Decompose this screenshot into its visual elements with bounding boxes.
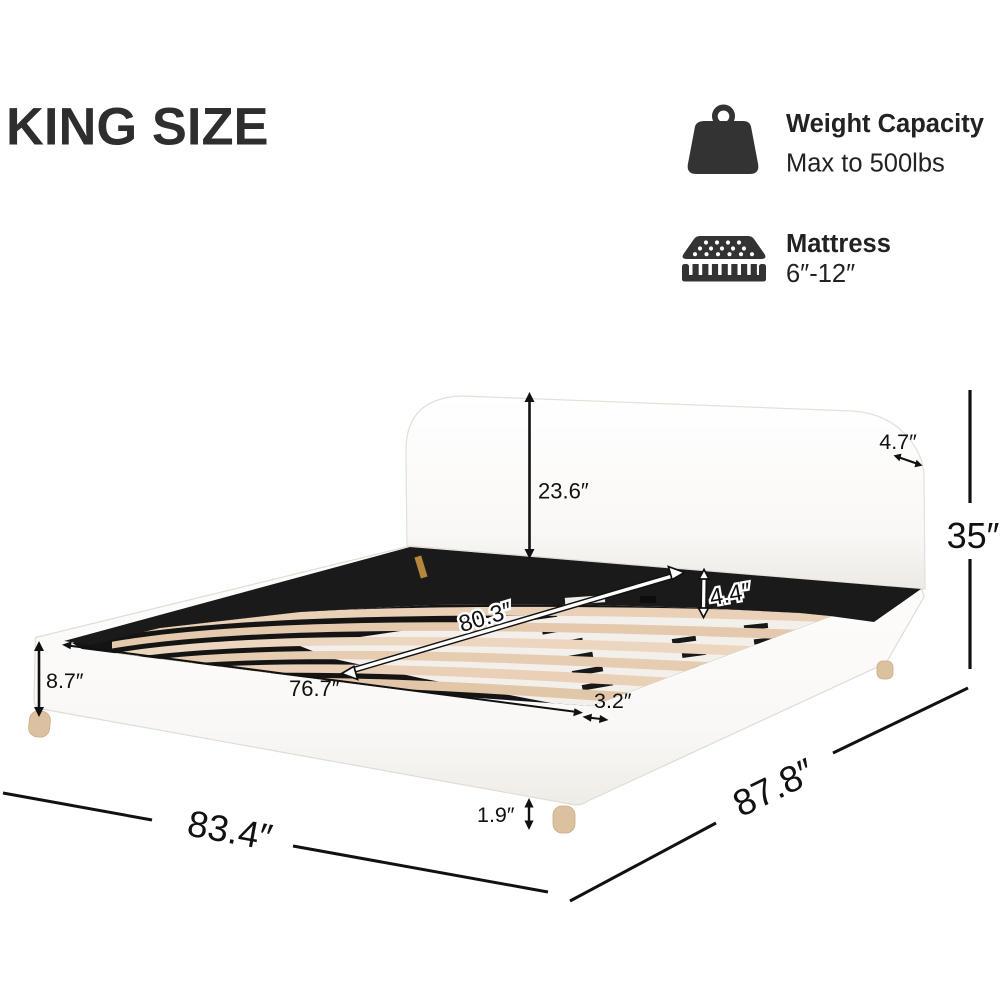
svg-text:8.7″: 8.7″	[46, 669, 84, 693]
svg-text:83.4″: 83.4″	[184, 803, 275, 859]
svg-text:Mattress: Mattress	[786, 230, 891, 258]
svg-text:3.2″: 3.2″	[594, 689, 632, 713]
svg-text:4.7″: 4.7″	[879, 430, 917, 454]
svg-text:Max to 500lbs: Max to 500lbs	[786, 150, 945, 178]
svg-text:Weight Capacity: Weight Capacity	[786, 110, 985, 138]
svg-text:76.7″: 76.7″	[289, 676, 340, 701]
svg-text:6″-12″: 6″-12″	[786, 260, 855, 288]
svg-text:87.8″: 87.8″	[727, 750, 821, 824]
svg-text:23.6″: 23.6″	[538, 479, 589, 504]
svg-text:1.9″: 1.9″	[477, 803, 515, 827]
svg-text:35″: 35″	[947, 515, 1000, 556]
svg-text:KING SIZE: KING SIZE	[6, 98, 269, 157]
